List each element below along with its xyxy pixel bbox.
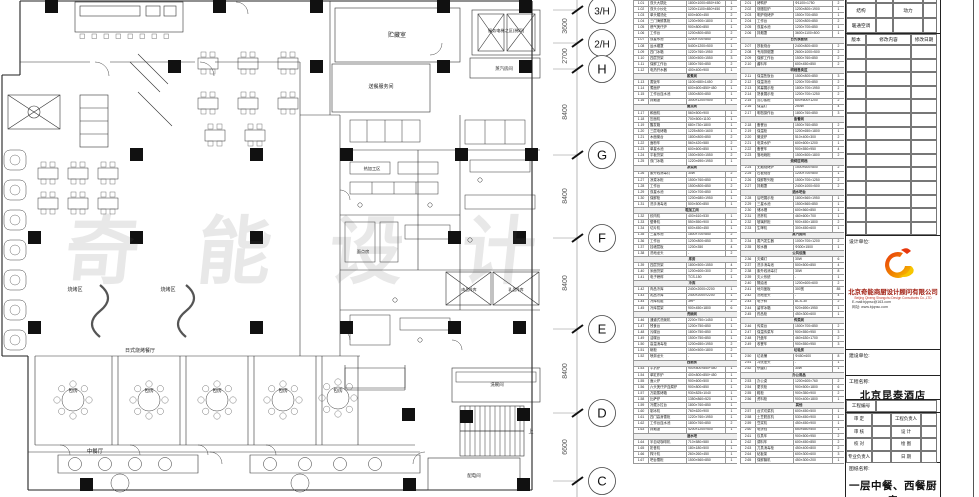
revision-empty-cell xyxy=(846,99,866,113)
titleblock-cell xyxy=(872,426,891,439)
revision-empty-cell xyxy=(911,72,937,86)
design-unit-section: 设计单位: 北京奇能商厨设计顾问有限公司 Beijing Qineng Shan… xyxy=(846,236,940,350)
revision-empty-cell xyxy=(866,140,911,154)
sheet-border-line xyxy=(973,0,974,497)
signature-table: 审 定工程负责人审 核设 计校 对绘 图专业负责人日 期 xyxy=(846,413,940,463)
column xyxy=(28,321,41,334)
room-label: 面点房 xyxy=(357,248,370,255)
equipment-row: 1.67吧台雪柜1500×560×8501台 xyxy=(634,458,738,464)
room-label: 烧烤区 xyxy=(67,286,82,293)
revision-empty-cell xyxy=(846,195,866,209)
grid-dimension: 8400 xyxy=(562,104,569,120)
titleblock-cell xyxy=(921,451,937,464)
titleblock-cell xyxy=(876,18,893,33)
room-label: 服务电梯之区(梯四) xyxy=(488,27,525,34)
titleblock-cell: 日 期 xyxy=(891,451,921,464)
column xyxy=(519,60,532,73)
column xyxy=(130,148,143,161)
revision-empty-cell xyxy=(866,208,911,222)
grid-bubble-label: H xyxy=(597,62,606,77)
project-section: 工程名称: 北京昆泰酒店 xyxy=(846,376,940,400)
titleblock-cell xyxy=(893,18,923,33)
grid-bubble-label: F xyxy=(598,231,606,246)
revision-empty-cell xyxy=(911,140,937,154)
drawing-name: 一层中餐、西餐厨房 xyxy=(846,478,940,497)
revision-empty-cell xyxy=(911,195,937,209)
revision-empty-cell xyxy=(866,222,911,236)
grid-bubble-label: D xyxy=(597,406,606,421)
revision-empty-cell xyxy=(866,99,911,113)
room-label: 烧烤区 xyxy=(160,286,175,293)
revision-empty-cell xyxy=(846,86,866,100)
revision-empty-cell xyxy=(911,113,937,127)
column xyxy=(168,60,181,73)
column xyxy=(250,231,263,244)
revision-empty-cell xyxy=(866,167,911,181)
revision-empty-cell xyxy=(846,154,866,168)
title-block: 给水电气结构动力暖通空调 版本修改内容修改日期 设计单位: 北京奇能商厨设计顾问… xyxy=(845,0,941,497)
column xyxy=(403,478,416,491)
revision-empty-cell xyxy=(911,222,937,236)
room-label: 上 xyxy=(528,428,533,435)
room-label: 包房 xyxy=(212,387,222,394)
grid-dimension: 6600 xyxy=(562,439,569,455)
revision-empty-cell xyxy=(846,113,866,127)
revision-empty-cell xyxy=(846,181,866,195)
revision-empty-cell xyxy=(866,181,911,195)
column xyxy=(519,0,532,13)
revision-empty-cell xyxy=(911,99,937,113)
column xyxy=(517,408,530,421)
grid-dimension: 3600 xyxy=(562,18,569,34)
titleblock-cell xyxy=(872,438,891,451)
titleblock-cell xyxy=(921,413,937,426)
revision-empty-cell xyxy=(866,72,911,86)
titleblock-cell xyxy=(923,3,937,18)
grid-bubble-label: 3/H xyxy=(594,7,610,18)
grid-dimension: 2700 xyxy=(562,48,569,64)
column xyxy=(455,148,468,161)
column xyxy=(213,0,226,13)
revision-empty-cell xyxy=(911,86,937,100)
revision-empty-cell xyxy=(911,208,937,222)
discipline-table: 给水电气结构动力暖通空调 xyxy=(846,0,940,34)
column xyxy=(130,231,143,244)
room-label: 中餐厅 xyxy=(87,447,104,455)
room-label: 贮藏室 xyxy=(388,31,406,39)
company-website: 网址: www.bjqnsc.com xyxy=(846,305,940,310)
column xyxy=(250,321,263,334)
revision-empty-cell xyxy=(846,140,866,154)
revision-header-cell: 修改内容 xyxy=(866,34,911,45)
revision-empty-cell xyxy=(866,154,911,168)
revision-empty-cell xyxy=(911,181,937,195)
revision-empty-cell xyxy=(911,167,937,181)
project-label: 工程名称: xyxy=(846,376,940,385)
room-label: 包房 xyxy=(68,387,78,394)
column xyxy=(448,321,461,334)
column xyxy=(513,231,526,244)
titleblock-cell: 工程负责人 xyxy=(891,413,921,426)
revision-empty-cell xyxy=(911,45,937,59)
project-no-value xyxy=(876,400,937,412)
column xyxy=(45,0,58,13)
grid-dimension: 8400 xyxy=(562,363,569,379)
room-label: 配电间 xyxy=(467,472,480,479)
column xyxy=(460,410,473,423)
equipment-schedule-left: 1.01双头大锅灶1800×1000×850+4501台1.02双头小炒灶120… xyxy=(633,0,737,497)
column xyxy=(448,231,461,244)
grid-dimension: 8400 xyxy=(562,188,569,204)
column xyxy=(340,148,353,161)
revision-empty-cell xyxy=(911,59,937,73)
room-label: 包房 xyxy=(333,387,343,394)
design-unit-label: 设计单位: xyxy=(846,236,940,245)
project-no-label: 工程编号 xyxy=(846,400,876,412)
revision-empty-cell xyxy=(846,45,866,59)
room-label: 送餐服务间 xyxy=(368,83,393,90)
furniture-group xyxy=(4,34,382,492)
grid-dimension: 8400 xyxy=(562,275,569,291)
revision-empty-cell xyxy=(846,167,866,181)
client-label: 建设单位: xyxy=(846,350,940,359)
column xyxy=(525,148,538,161)
company-logo xyxy=(871,246,915,286)
drawing-name-section: 图纸名称: 一层中餐、西餐厨房 xyxy=(846,463,940,497)
kitchen-equipment-group xyxy=(345,120,536,388)
room-label: 蒸汽房间 xyxy=(495,65,513,72)
revision-table: 版本修改内容修改日期 xyxy=(846,34,940,236)
company-name-cn: 北京奇能商厨设计顾问有限公司 xyxy=(846,287,940,296)
revision-empty-cell xyxy=(911,154,937,168)
client-section: 建设单位: xyxy=(846,350,940,376)
titleblock-cell: 绘 图 xyxy=(891,438,921,451)
titleblock-cell xyxy=(921,426,937,439)
room-label: 乳品冷库 xyxy=(508,287,523,292)
grid-bubble-label: G xyxy=(597,148,607,163)
titleblock-cell xyxy=(923,18,937,33)
titleblock-cell: 审 定 xyxy=(846,413,872,426)
column xyxy=(80,478,93,491)
column xyxy=(310,60,323,73)
titleblock-cell: 结构 xyxy=(846,3,876,18)
drawing-name-label: 图纸名称: xyxy=(846,463,940,472)
revision-empty-cell xyxy=(866,127,911,141)
revision-empty-cell xyxy=(866,195,911,209)
equipment-row: 2.65保鲜膜机450×300×2001台 xyxy=(741,458,845,464)
grid-bubble-label: E xyxy=(598,322,607,337)
room-label: 洗碗间 xyxy=(490,381,503,388)
revision-header-cell: 修改日期 xyxy=(911,34,937,45)
revision-empty-cell xyxy=(866,86,911,100)
titleblock-cell: 暖通空调 xyxy=(846,18,876,33)
walls-group xyxy=(2,1,532,490)
project-no-row: 工程编号 xyxy=(846,400,940,413)
equipment-schedule-right: 2.01烤鸭炉Φ1100×17502台2.02烧腊挂炉1200×800×1900… xyxy=(740,0,844,497)
titleblock-cell xyxy=(921,438,937,451)
revision-empty-cell xyxy=(846,59,866,73)
grid-bubble-label: 2/H xyxy=(594,40,610,51)
column xyxy=(437,0,450,13)
revision-header-cell: 版本 xyxy=(846,34,866,45)
revision-empty-cell xyxy=(846,208,866,222)
room-label: 包房 xyxy=(144,387,154,394)
column xyxy=(402,408,415,421)
column xyxy=(513,321,526,334)
column xyxy=(250,148,263,161)
titleblock-cell xyxy=(872,413,891,426)
floor-plan: 贮藏室服务电梯之区(梯四)蒸汽房间送餐服务间烧烤区烧烤区日式烧烤餐厅包房包房包房… xyxy=(0,0,560,497)
revision-empty-cell xyxy=(846,72,866,86)
room-label: 肉品冷库 xyxy=(461,287,476,292)
titleblock-cell xyxy=(876,3,893,18)
revision-empty-cell xyxy=(911,127,937,141)
drawing-sheet: 贮藏室服务电梯之区(梯四)蒸汽房间送餐服务间烧烤区烧烤区日式烧烤餐厅包房包房包房… xyxy=(0,0,979,497)
column xyxy=(310,0,323,13)
titleblock-cell: 动力 xyxy=(893,3,923,18)
titleblock-cell: 设 计 xyxy=(891,426,921,439)
revision-empty-cell xyxy=(846,127,866,141)
column xyxy=(340,321,353,334)
revision-empty-cell xyxy=(846,222,866,236)
revision-empty-cell xyxy=(866,59,911,73)
room-label: 包房 xyxy=(278,387,288,394)
titleblock-cell xyxy=(872,451,891,464)
column xyxy=(517,478,530,491)
titleblock-cell: 专业负责人 xyxy=(846,451,872,464)
column xyxy=(28,231,41,244)
room-label: 热加工区 xyxy=(364,165,381,172)
structural-columns-group xyxy=(28,0,538,491)
column xyxy=(437,60,450,73)
titleblock-cell: 校 对 xyxy=(846,438,872,451)
titleblock-cell: 审 核 xyxy=(846,426,872,439)
room-label: 日式烧烤餐厅 xyxy=(125,347,155,354)
revision-empty-cell xyxy=(866,45,911,59)
revision-empty-cell xyxy=(866,113,911,127)
grid-bubble-label: C xyxy=(597,474,606,489)
